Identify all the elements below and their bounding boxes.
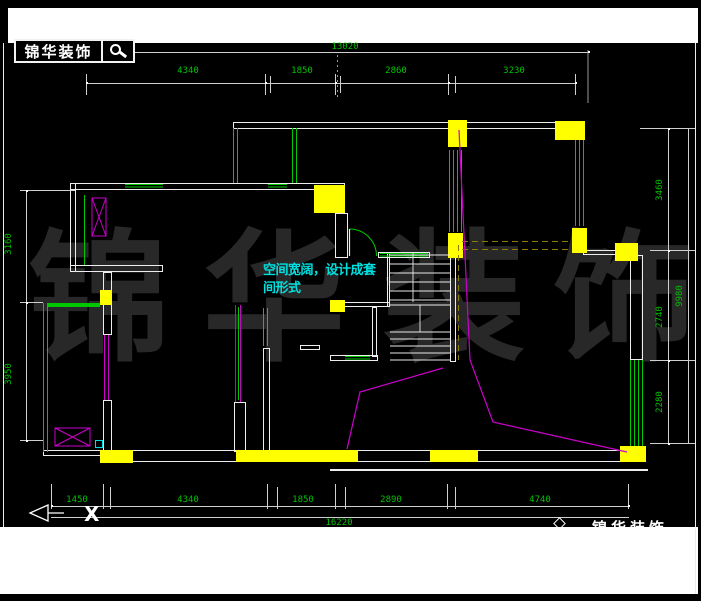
dim-tick xyxy=(345,487,346,509)
dim-text: 4340 xyxy=(148,66,228,76)
grip-dot xyxy=(26,440,28,442)
column-block xyxy=(330,300,345,312)
dim-tick xyxy=(447,484,448,509)
ucs-x-label: X xyxy=(84,502,99,526)
wall-segment xyxy=(70,183,345,190)
annotation-line1: 空间宽阔，设计成套 xyxy=(263,262,376,280)
dim-tick xyxy=(340,76,341,93)
grip-dot xyxy=(265,82,267,84)
dim-text: 3230 xyxy=(474,66,554,76)
window xyxy=(233,128,238,183)
sliding-door xyxy=(235,305,241,402)
wall-segment xyxy=(43,450,103,456)
grip-dot xyxy=(26,302,28,304)
dim-tick xyxy=(86,74,87,95)
grip-dot xyxy=(668,128,670,130)
dim-line xyxy=(668,128,669,443)
dim-tick xyxy=(650,250,695,251)
dim-tick xyxy=(20,190,75,191)
cad-floorplan-canvas[interactable]: 锦华装饰 锦 华 装 饰 xyxy=(0,0,701,601)
dim-tick xyxy=(20,302,43,303)
window xyxy=(345,356,370,361)
sliding-door xyxy=(104,335,109,400)
wall-segment xyxy=(335,213,348,258)
dim-line xyxy=(51,506,629,507)
wall-segment xyxy=(387,253,390,307)
dim-text: 1850 xyxy=(262,66,342,76)
wall-segment xyxy=(450,253,456,362)
dim-tick xyxy=(575,74,576,95)
watermark-char: 华 xyxy=(203,228,345,370)
window xyxy=(125,184,163,189)
dim-tick xyxy=(335,74,336,95)
dim-text: 3950 xyxy=(4,346,14,402)
dim-line xyxy=(103,52,588,53)
dim-text: 3460 xyxy=(655,162,665,218)
dim-tick xyxy=(270,76,271,93)
grip-dot xyxy=(335,82,337,84)
column-block xyxy=(555,121,585,140)
dim-text-right-total: 9980 xyxy=(675,268,685,324)
dim-text: 1450 xyxy=(37,495,117,505)
dim-text: 4340 xyxy=(148,495,228,505)
column-block xyxy=(430,450,478,462)
grip-dot xyxy=(26,190,28,192)
fixture-box xyxy=(95,440,103,448)
grip-dot xyxy=(668,443,670,445)
brand-logo-text: 锦华装饰 xyxy=(16,41,103,61)
column-block xyxy=(448,233,463,258)
watermark-char: 锦 xyxy=(28,228,170,370)
window xyxy=(48,303,100,307)
dim-text-top-total: 13020 xyxy=(295,42,395,52)
window xyxy=(43,303,48,452)
grip-dot xyxy=(448,82,450,84)
window xyxy=(575,140,585,226)
column-block xyxy=(236,450,358,462)
window xyxy=(449,150,462,232)
dim-text: 3160 xyxy=(4,216,14,272)
dim-line xyxy=(26,190,27,440)
wall-segment xyxy=(630,255,643,360)
column-block xyxy=(314,185,345,213)
wall-segment xyxy=(103,400,112,452)
top-white-band xyxy=(8,8,701,43)
window xyxy=(292,128,297,183)
appliance-symbol xyxy=(55,428,90,446)
dim-tick xyxy=(265,74,266,95)
grip-dot xyxy=(588,51,590,53)
dim-text: 2280 xyxy=(655,374,665,430)
dim-tick xyxy=(650,360,695,361)
grip-dot xyxy=(86,82,88,84)
window xyxy=(268,184,287,189)
search-icon[interactable] xyxy=(103,41,133,61)
wall-segment xyxy=(583,250,618,255)
wall-segment xyxy=(70,183,76,272)
column-block xyxy=(615,243,638,261)
dim-tick xyxy=(448,74,449,95)
dim-line xyxy=(86,83,575,84)
dim-text: 2860 xyxy=(356,66,436,76)
drawing-border-right xyxy=(695,43,696,594)
grip-dot xyxy=(628,505,630,507)
dim-text: 2740 xyxy=(655,289,665,345)
dim-text: 4740 xyxy=(500,495,580,505)
column-block xyxy=(572,228,587,253)
column-block xyxy=(100,290,112,305)
door-swing-arc xyxy=(350,229,377,256)
dim-text: 2890 xyxy=(351,495,431,505)
column-block xyxy=(100,450,133,463)
wall-segment xyxy=(372,307,377,357)
wall-segment xyxy=(100,450,646,462)
dim-line xyxy=(688,128,689,443)
dim-tick xyxy=(455,76,456,93)
grip-dot xyxy=(668,360,670,362)
wall-segment xyxy=(234,402,246,452)
wall-segment xyxy=(70,265,163,272)
grip-dot xyxy=(575,82,577,84)
column-block xyxy=(448,120,467,147)
ucs-icon xyxy=(30,505,64,521)
bottom-white-strip xyxy=(0,527,698,594)
window xyxy=(84,195,85,265)
magnifier-handle xyxy=(119,51,127,58)
wall-segment xyxy=(300,345,320,350)
dim-text: 1850 xyxy=(263,495,343,505)
annotation-line2: 间形式 xyxy=(263,280,376,298)
dim-tick xyxy=(20,440,43,441)
dim-tick xyxy=(650,443,695,444)
annotation-text: 空间宽阔，设计成套 间形式 xyxy=(263,262,376,298)
dim-tick xyxy=(455,487,456,509)
window xyxy=(380,253,428,257)
wall-segment xyxy=(330,469,648,471)
grip-dot xyxy=(51,505,53,507)
column-block xyxy=(620,446,646,462)
drawing-border-left xyxy=(3,43,4,527)
wall-segment xyxy=(233,122,585,129)
window xyxy=(630,360,644,446)
grip-dot xyxy=(668,250,670,252)
brand-logo-box[interactable]: 锦华装饰 xyxy=(14,39,135,63)
wall-segment xyxy=(263,348,270,452)
